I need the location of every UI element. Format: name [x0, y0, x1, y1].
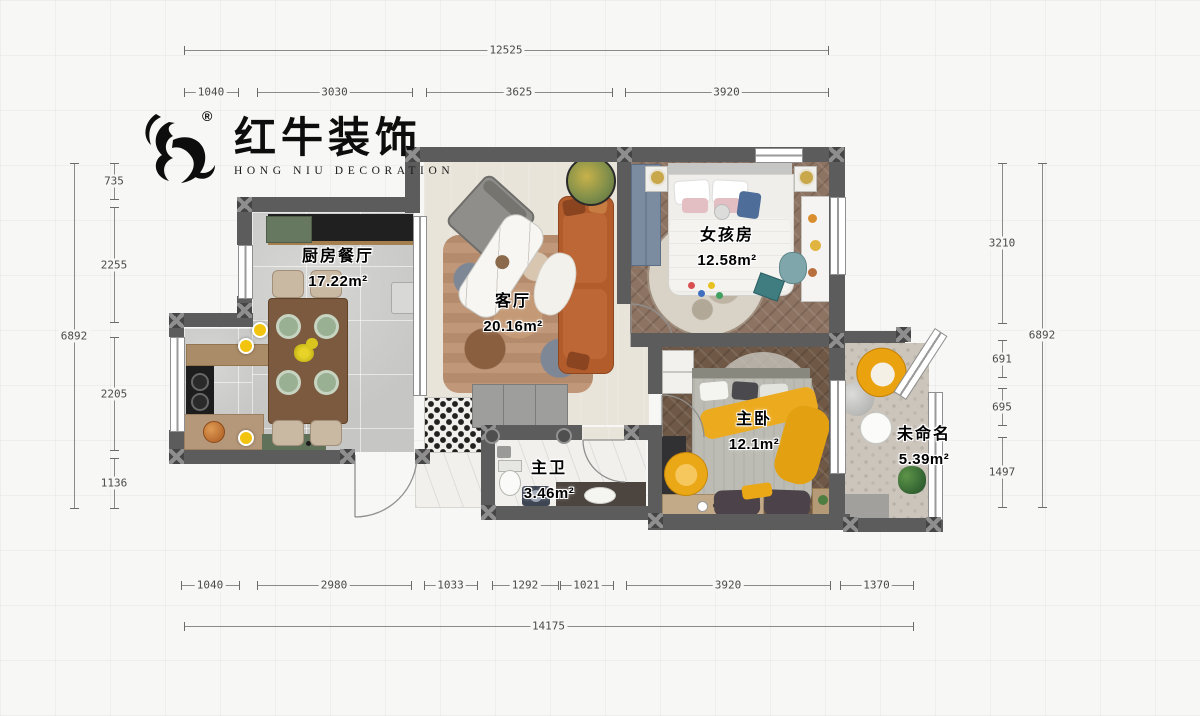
dimension-tick [184, 622, 185, 631]
dimension-tick [181, 581, 182, 590]
dimension-tick [110, 207, 119, 208]
room-area: 3.46m² [524, 482, 575, 505]
brand-name: 红牛装饰 [234, 116, 454, 162]
dimension-tick [998, 388, 1007, 389]
room-area: 5.39m² [897, 448, 951, 471]
dimension-tick [110, 450, 119, 451]
room-area: 17.22m² [302, 270, 374, 293]
dimension-label: 1292 [510, 579, 541, 592]
bull-icon: ® [136, 110, 226, 192]
dimension-tick [830, 581, 831, 590]
dimension-tick [110, 322, 119, 323]
dimension-tick [612, 88, 613, 97]
dimension-tick [110, 458, 119, 459]
dimension-label: 3210 [987, 237, 1018, 250]
dimension-tick [913, 581, 914, 590]
dimension-tick [913, 622, 914, 631]
dimension-tick [238, 88, 239, 97]
dimension-tick [70, 163, 79, 164]
dimension-tick [184, 88, 185, 97]
dimension-tick [998, 377, 1007, 378]
dimension-label: 12525 [487, 44, 524, 57]
room-label-bath: 主卫 3.46m² [524, 457, 575, 505]
room-label-master: 主卧 12.1m² [729, 408, 780, 456]
room-label-living: 客厅 20.16m² [483, 290, 542, 338]
room-name: 厨房餐厅 [302, 245, 374, 270]
dimension-label: 1040 [196, 86, 227, 99]
room-label-girl: 女孩房 12.58m² [697, 224, 756, 272]
room-label-balcony: 未命名 5.39m² [897, 423, 951, 471]
dimension-label: 1040 [195, 579, 226, 592]
room-area: 20.16m² [483, 315, 542, 338]
dimension-tick [257, 581, 258, 590]
dimension-label: 1497 [987, 466, 1018, 479]
dimension-tick [840, 581, 841, 590]
dimension-label: 691 [990, 352, 1014, 365]
registered-mark: ® [202, 108, 212, 124]
dimension-tick [110, 337, 119, 338]
dimension-tick [1038, 507, 1047, 508]
dimension-label: 2205 [99, 387, 130, 400]
dimension-tick [70, 508, 79, 509]
dimension-label: 735 [102, 175, 126, 188]
dimension-tick [110, 199, 119, 200]
room-name: 主卫 [524, 457, 575, 482]
dimension-label: 3920 [711, 86, 742, 99]
room-name: 主卧 [729, 408, 780, 433]
dimension-tick [998, 340, 1007, 341]
room-label-kitchen: 厨房餐厅 17.22m² [302, 245, 374, 293]
dimension-tick [560, 581, 561, 590]
room-name: 客厅 [483, 290, 542, 315]
dimension-label: 1370 [861, 579, 892, 592]
dimension-tick [257, 88, 258, 97]
dimension-label: 695 [990, 400, 1014, 413]
dimension-tick [828, 46, 829, 55]
dimension-label: 2980 [319, 579, 350, 592]
dimension-label: 6892 [59, 329, 90, 342]
dimension-tick [412, 88, 413, 97]
dimension-tick [626, 581, 627, 590]
dimension-tick [998, 163, 1007, 164]
dimension-label: 3030 [319, 86, 350, 99]
company-logo: ® 红牛装饰 HONG NIU DECORATION [136, 110, 454, 192]
dimension-tick [492, 581, 493, 590]
dimension-tick [998, 437, 1007, 438]
dimension-tick [184, 46, 185, 55]
dimension-label: 6892 [1027, 329, 1058, 342]
dimension-tick [426, 88, 427, 97]
dimension-tick [110, 508, 119, 509]
room-area: 12.58m² [697, 249, 756, 272]
dimension-layer: 1252510403030362539201040298010331292102… [0, 0, 1200, 716]
dimension-tick [477, 581, 478, 590]
dimension-tick [625, 88, 626, 97]
dimension-tick [828, 88, 829, 97]
dimension-tick [998, 425, 1007, 426]
dimension-label: 3920 [713, 579, 744, 592]
dimension-tick [411, 581, 412, 590]
dimension-tick [613, 581, 614, 590]
dimension-label: 1033 [435, 579, 466, 592]
room-name: 女孩房 [697, 224, 756, 249]
dimension-label: 1136 [99, 477, 130, 490]
room-name: 未命名 [897, 423, 951, 448]
dimension-tick [1038, 163, 1047, 164]
dimension-tick [998, 507, 1007, 508]
dimension-label: 14175 [530, 620, 567, 633]
dimension-label: 1021 [571, 579, 602, 592]
bull-icon [136, 110, 226, 192]
floorplan-canvas: ® 红牛装饰 HONG NIU DECORATION [0, 0, 1200, 716]
brand-subtitle: HONG NIU DECORATION [234, 165, 454, 177]
dimension-tick [424, 581, 425, 590]
dimension-label: 3625 [504, 86, 535, 99]
dimension-tick [558, 581, 559, 590]
dimension-tick [998, 323, 1007, 324]
dimension-tick [110, 163, 119, 164]
dimension-tick [239, 581, 240, 590]
room-area: 12.1m² [729, 433, 780, 456]
dimension-label: 2255 [99, 258, 130, 271]
